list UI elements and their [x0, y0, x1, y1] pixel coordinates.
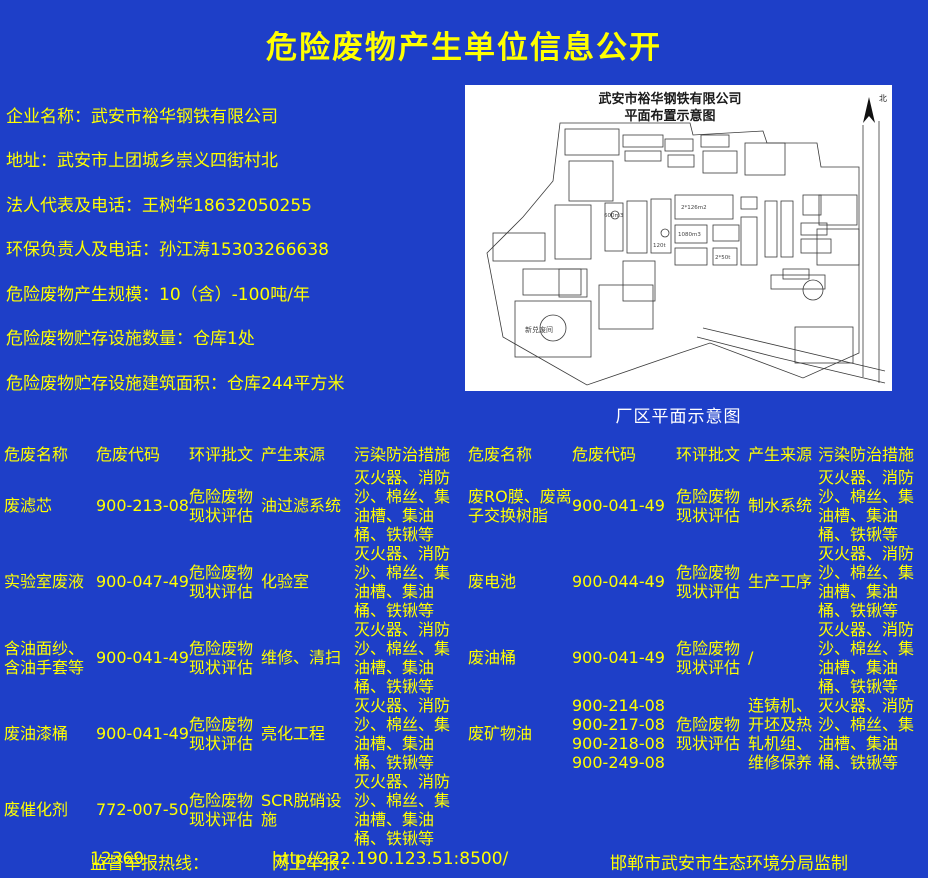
cell-source: 制水系统 [748, 468, 818, 544]
cell-approval: 危险废物现状评估 [189, 544, 261, 620]
cell-source: 连铸机、开坯及热轧机组、维修保养 [748, 696, 818, 772]
cell-measures: 灭火器、消防沙、棉丝、集油槽、集油桶、铁锹等 [354, 544, 460, 620]
cell-source: 亮化工程 [261, 696, 354, 772]
info-company-name: 企业名称：武安市裕华钢铁有限公司 [6, 92, 456, 137]
cell-source: 油过滤系统 [261, 468, 354, 544]
cell-source: SCR脱硝设施 [261, 772, 354, 848]
info-value: 10（含）-100吨/年 [159, 280, 310, 305]
cell-measures: 灭火器、消防沙、棉丝、集油槽、集油桶、铁锹等 [818, 468, 924, 544]
cell-source: 化验室 [261, 544, 354, 620]
waste-table-right: 危废名称 危废代码 环评批文 产生来源 污染防治措施 废RO膜、废离子交换树脂 … [468, 438, 924, 772]
info-production-scale: 危险废物产生规模：10（含）-100吨/年 [6, 270, 456, 315]
cell-measures: 灭火器、消防沙、棉丝、集油槽、集油桶、铁锹等 [354, 772, 460, 848]
cell-approval: 危险废物现状评估 [676, 620, 748, 696]
cell-waste-code: 772-007-50 [96, 772, 189, 848]
info-value: 仓库1处 [193, 324, 255, 349]
info-label: 危险废物贮存设施建筑面积： [6, 369, 227, 394]
cell-waste-code: 900-041-49 [572, 468, 676, 544]
map-annotations: 600m3 1080m3 120t 2*50t 2*126m2 新兑废间 [525, 205, 731, 334]
map-annotation: 2*50t [715, 255, 731, 261]
info-value: 仓库244平方米 [227, 369, 344, 394]
cell-approval: 危险废物现状评估 [676, 468, 748, 544]
cell-approval: 危险废物现状评估 [189, 772, 261, 848]
company-info-block: 企业名称：武安市裕华钢铁有限公司 地址：武安市上团城乡崇义四街村北 法人代表及电… [6, 92, 456, 404]
column-header-source: 产生来源 [261, 438, 354, 468]
cell-waste-code: 900-044-49 [572, 544, 676, 620]
cell-waste-code: 900-213-08 [96, 468, 189, 544]
column-header-code: 危废代码 [96, 438, 189, 468]
map-annotation: 600m3 [604, 213, 624, 219]
cell-approval: 危险废物现状评估 [676, 544, 748, 620]
info-storage-count: 危险废物贮存设施数量：仓库1处 [6, 315, 456, 360]
cell-waste-name: 实验室废液 [4, 544, 96, 620]
cell-source: 维修、清扫 [261, 620, 354, 696]
column-header-measures: 污染防治措施 [818, 438, 924, 468]
info-env-manager: 环保负责人及电话：孙江涛15303266638 [6, 226, 456, 271]
info-value: 孙江涛15303266638 [159, 235, 329, 260]
info-label: 危险废物贮存设施数量： [6, 324, 193, 349]
cell-measures: 灭火器、消防沙、棉丝、集油槽、集油桶、铁锹等 [818, 544, 924, 620]
cell-approval: 危险废物现状评估 [189, 696, 261, 772]
producer-credit: 邯郸市武安市生态环境分局监制 [610, 849, 848, 874]
column-header-approval: 环评批文 [189, 438, 261, 468]
cell-measures: 灭火器、消防沙、棉丝、集油槽、集油桶、铁锹等 [354, 696, 460, 772]
info-value: 武安市上团城乡崇义四街村北 [57, 146, 278, 171]
column-header-code: 危废代码 [572, 438, 676, 468]
cell-waste-name: 废油漆桶 [4, 696, 96, 772]
info-value: 武安市裕华钢铁有限公司 [91, 102, 278, 127]
cell-waste-name: 废滤芯 [4, 468, 96, 544]
online-report-url: http//222.190.123.51:8500/ [272, 849, 508, 869]
map-annotation: 120t [653, 243, 666, 249]
cell-waste-code: 900-041-49 [572, 620, 676, 696]
map-title-line2: 平面布置示意图 [624, 108, 715, 124]
info-value: 王树华18632050255 [142, 191, 312, 216]
info-storage-area: 危险废物贮存设施建筑面积：仓库244平方米 [6, 359, 456, 404]
cell-waste-name: 废催化剂 [4, 772, 96, 848]
cell-source: / [748, 620, 818, 696]
info-label: 企业名称： [6, 102, 91, 127]
column-header-name: 危废名称 [468, 438, 572, 468]
cell-measures: 灭火器、消防沙、棉丝、集油槽、集油桶、铁锹等 [354, 620, 460, 696]
cell-waste-name: 废RO膜、废离子交换树脂 [468, 468, 572, 544]
cell-waste-code: 900-041-49 [96, 620, 189, 696]
cell-waste-name: 废矿物油 [468, 696, 572, 772]
info-label: 环保负责人及电话： [6, 235, 159, 260]
map-caption: 厂区平面示意图 [465, 402, 892, 427]
cell-waste-code: 900-214-08 900-217-08 900-218-08 900-249… [572, 696, 676, 772]
cell-waste-code: 900-041-49 [96, 696, 189, 772]
info-label: 危险废物产生规模： [6, 280, 159, 305]
cell-source: 生产工序 [748, 544, 818, 620]
cell-approval: 危险废物现状评估 [189, 468, 261, 544]
column-header-source: 产生来源 [748, 438, 818, 468]
info-label: 法人代表及电话： [6, 191, 142, 216]
report-hotline-number: 12369 [90, 849, 144, 869]
cell-approval: 危险废物现状评估 [676, 696, 748, 772]
north-arrow-icon [863, 97, 875, 123]
map-shapes [487, 121, 885, 385]
cell-waste-code: 900-047-49 [96, 544, 189, 620]
factory-plan-map: 武安市裕华钢铁有限公司 平面布置示意图 北 [465, 85, 892, 391]
column-header-approval: 环评批文 [676, 438, 748, 468]
info-label: 地址： [6, 146, 57, 171]
cell-approval: 危险废物现状评估 [189, 620, 261, 696]
column-header-measures: 污染防治措施 [354, 438, 460, 468]
cell-waste-name: 含油面纱、含油手套等 [4, 620, 96, 696]
cell-waste-name: 废油桶 [468, 620, 572, 696]
map-annotation: 1080m3 [678, 232, 701, 238]
column-header-name: 危废名称 [4, 438, 96, 468]
cell-measures: 灭火器、消防沙、棉丝、集油槽、集油桶、铁锹等 [818, 696, 924, 772]
info-address: 地址：武安市上团城乡崇义四街村北 [6, 137, 456, 182]
map-title-line1: 武安市裕华钢铁有限公司 [598, 91, 741, 107]
cell-measures: 灭火器、消防沙、棉丝、集油槽、集油桶、铁锹等 [354, 468, 460, 544]
map-annotation: 新兑废间 [525, 325, 553, 334]
cell-measures: 灭火器、消防沙、棉丝、集油槽、集油桶、铁锹等 [818, 620, 924, 696]
page-title: 危险废物产生单位信息公开 [0, 22, 928, 67]
cell-waste-name: 废电池 [468, 544, 572, 620]
factory-plan-drawing: 武安市裕华钢铁有限公司 平面布置示意图 北 [465, 85, 892, 391]
north-label: 北 [879, 94, 887, 103]
waste-table-left: 危废名称 危废代码 环评批文 产生来源 污染防治措施 废滤芯 900-213-0… [4, 438, 460, 848]
info-legal-representative: 法人代表及电话：王树华18632050255 [6, 181, 456, 226]
map-annotation: 2*126m2 [681, 205, 707, 211]
